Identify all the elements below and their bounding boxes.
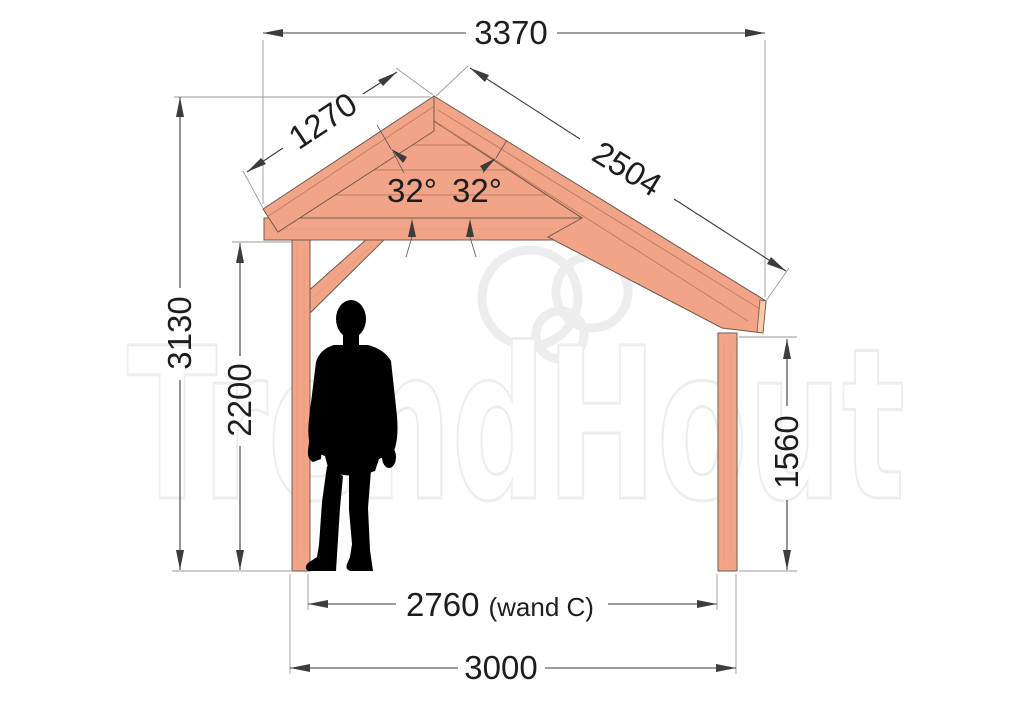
arrow-up-icon [176, 97, 184, 117]
dim-label-outer-span: 3000 [464, 649, 537, 686]
arrow-left-icon [290, 664, 310, 672]
dim-label-right-roof-angle: 32° [452, 172, 502, 209]
gable-beam [264, 218, 584, 240]
dim-label-left-slope: 1270 [282, 85, 364, 157]
dim-inner-span: 2760(wand C) [308, 586, 717, 623]
left-post [292, 233, 310, 571]
dim-inner-span-note: (wand C) [488, 592, 593, 622]
dim-outer-span: 3000 [290, 649, 736, 686]
arrow-down-icon [783, 550, 791, 570]
arrow-up-right-icon [378, 72, 397, 86]
dim-inner-span-value: 2760 [406, 586, 479, 623]
dim-label-total-height: 3130 [161, 296, 198, 369]
dim-label-left-clear-height: 2200 [221, 363, 258, 436]
arrow-left-icon [308, 600, 328, 608]
dim-roof-total-width: 3370 [263, 14, 765, 51]
arrow-down-icon [236, 550, 244, 570]
veranda-side-elevation: TrendHout [0, 0, 1024, 704]
arrow-left-icon [263, 29, 283, 37]
dim-label-roof-total-width: 3370 [474, 14, 547, 51]
dim-label-right-post-height: 1560 [768, 415, 805, 488]
dim-label-right-slope: 2504 [586, 134, 668, 204]
arrow-right-icon [745, 29, 765, 37]
dim-label-left-roof-angle: 32° [387, 172, 437, 209]
dim-label-inner-span: 2760(wand C) [406, 586, 594, 623]
arrow-down-icon [176, 550, 184, 570]
arrow-up-left-icon [470, 68, 489, 82]
right-post [718, 333, 737, 571]
arrow-right-icon [697, 600, 717, 608]
technical-drawing-canvas: TrendHout [0, 0, 1024, 704]
arrow-right-icon [716, 664, 736, 672]
arrow-down-right-icon [767, 257, 786, 271]
arrow-up-icon [236, 243, 244, 263]
